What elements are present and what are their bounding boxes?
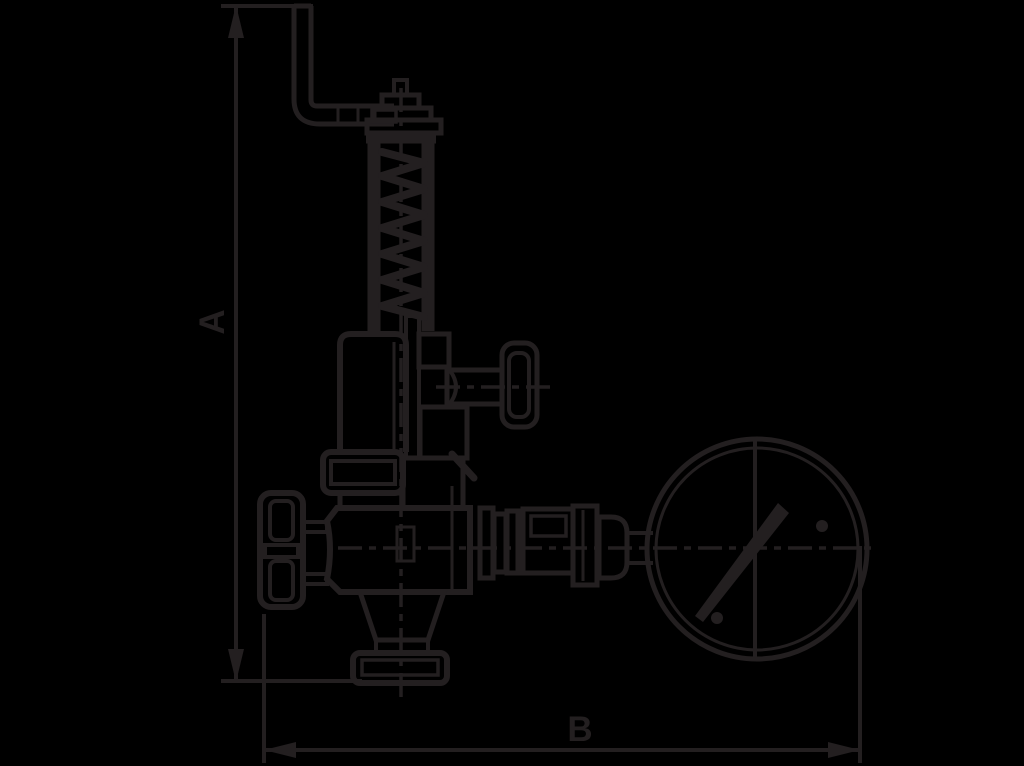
gauge-screw <box>711 612 723 624</box>
test-knob-branch <box>406 316 537 478</box>
dimension-b-arrow-left <box>264 742 296 758</box>
dimension-b-arrow-right <box>828 742 860 758</box>
spindle <box>303 574 327 584</box>
dimension-label-a: A <box>193 309 232 334</box>
spindle <box>303 522 327 532</box>
spring-coil <box>382 152 424 317</box>
gauge-screw <box>816 520 828 532</box>
dimension-a-arrow-up <box>228 5 244 38</box>
gauge-needle <box>695 503 789 622</box>
dimension-a-arrow-down <box>228 649 244 682</box>
bonnet-flange <box>323 452 403 508</box>
handwheel <box>260 493 327 607</box>
drawing-canvas: A B <box>0 0 1024 766</box>
dimension-label-b: B <box>567 710 592 749</box>
adjusting-sleeve <box>340 334 406 452</box>
handwheel-hub <box>265 545 298 557</box>
valve-technical-drawing: A B <box>0 0 1024 766</box>
gauge-piping <box>480 506 653 585</box>
